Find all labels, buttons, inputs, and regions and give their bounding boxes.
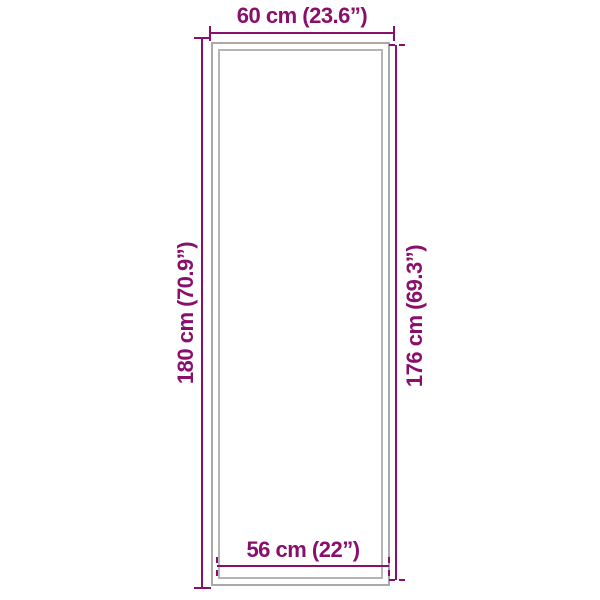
bottom-width-dimension-label: 56 cm (22”)	[217, 538, 389, 562]
top-dimension-right-tick	[393, 26, 395, 41]
left-dimension-bottom-tick	[194, 587, 211, 589]
right-dimension-line	[395, 45, 397, 580]
bottom-dimension-line	[217, 565, 389, 567]
mat-inner-outline	[218, 49, 383, 579]
right-height-dimension-label: 176 cm (69.3”)	[401, 116, 429, 516]
mat-outer-outline	[211, 42, 390, 586]
left-height-dimension-label: 180 cm (70.9”)	[172, 113, 200, 513]
left-dimension-top-tick	[194, 37, 211, 39]
right-dimension-top-tick	[389, 44, 405, 46]
top-width-dimension-label: 60 cm (23.6”)	[209, 2, 395, 30]
left-dimension-line	[201, 38, 203, 588]
product-dimension-diagram: 60 cm (23.6”) 180 cm (70.9”) 176 cm (69.…	[0, 0, 600, 600]
bottom-dimension-left-tick	[216, 557, 218, 576]
right-dimension-bottom-tick	[389, 579, 405, 581]
top-dimension-line	[209, 32, 395, 34]
bottom-dimension-right-tick	[388, 557, 390, 576]
